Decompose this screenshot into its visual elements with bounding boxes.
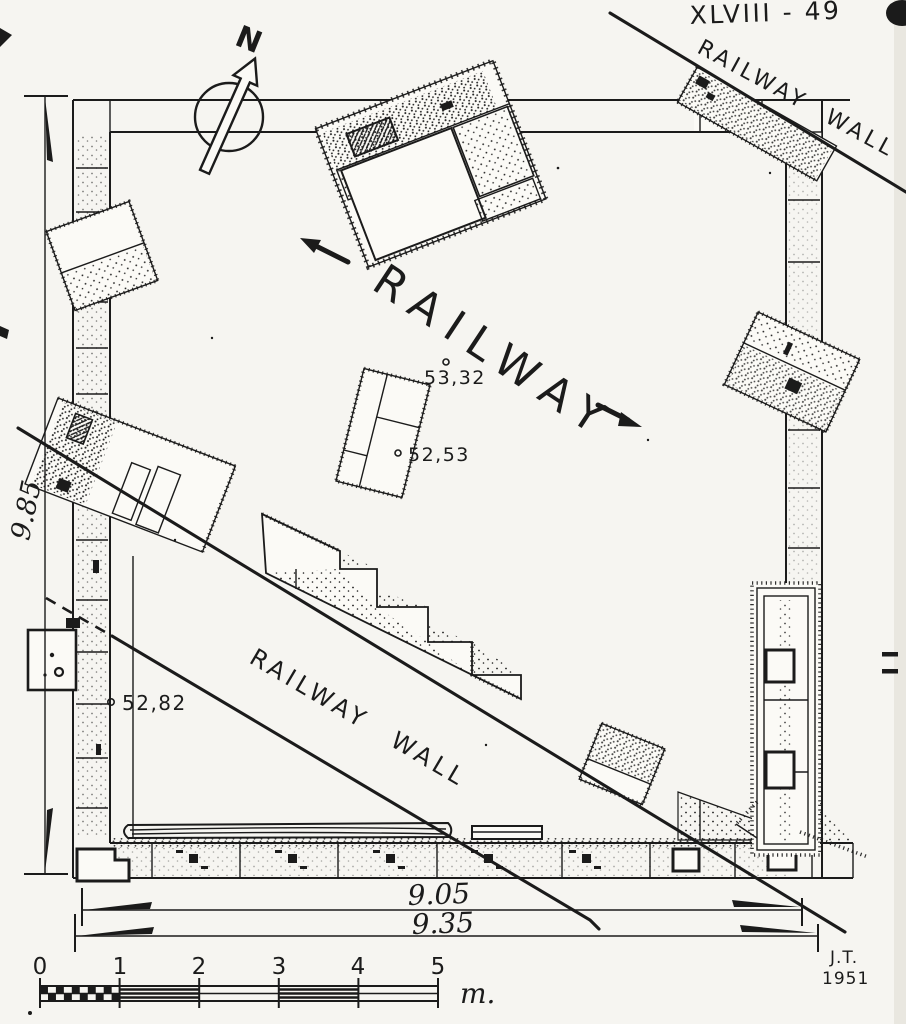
scale-unit: m. <box>460 977 495 1010</box>
scale-tick-4: 4 <box>351 954 366 980</box>
pillar-socket-1 <box>766 650 794 682</box>
svg-text:52,53: 52,53 <box>408 444 470 466</box>
scale-tick-5: 5 <box>431 954 446 980</box>
author-initials: J.T. <box>829 948 858 968</box>
scan-dash-right-1 <box>882 652 898 657</box>
scale-tick-2: 2 <box>192 954 207 980</box>
paper-edge-shade <box>894 0 906 1024</box>
plan-sheet: XLVIII - 49 RAILWAY WALL RAILWAY RAILWAY… <box>0 0 906 1024</box>
bottom-wall-framed-block-1 <box>673 849 699 871</box>
scale-tick-3: 3 <box>272 954 287 980</box>
bottom-outer-value: 9.35 <box>411 906 474 941</box>
left-annexe-box <box>28 630 76 690</box>
left-wall-dark-block-4 <box>93 560 99 573</box>
pillar-socket-2 <box>766 752 794 788</box>
scale-tick-0: 0 <box>33 954 48 980</box>
scan-dash-right-2 <box>882 669 898 674</box>
left-wall-dark-block-5 <box>96 744 101 755</box>
plate-number: XLVIII - 49 <box>689 0 842 30</box>
svg-text:52,82: 52,82 <box>122 691 187 715</box>
plan-drawing: XLVIII - 49 RAILWAY WALL RAILWAY RAILWAY… <box>0 0 906 1024</box>
left-wall-dark-block-3 <box>66 618 80 628</box>
svg-text:53,32: 53,32 <box>424 367 486 389</box>
scale-tick-1: 1 <box>113 954 128 980</box>
year: 1951 <box>822 969 869 989</box>
